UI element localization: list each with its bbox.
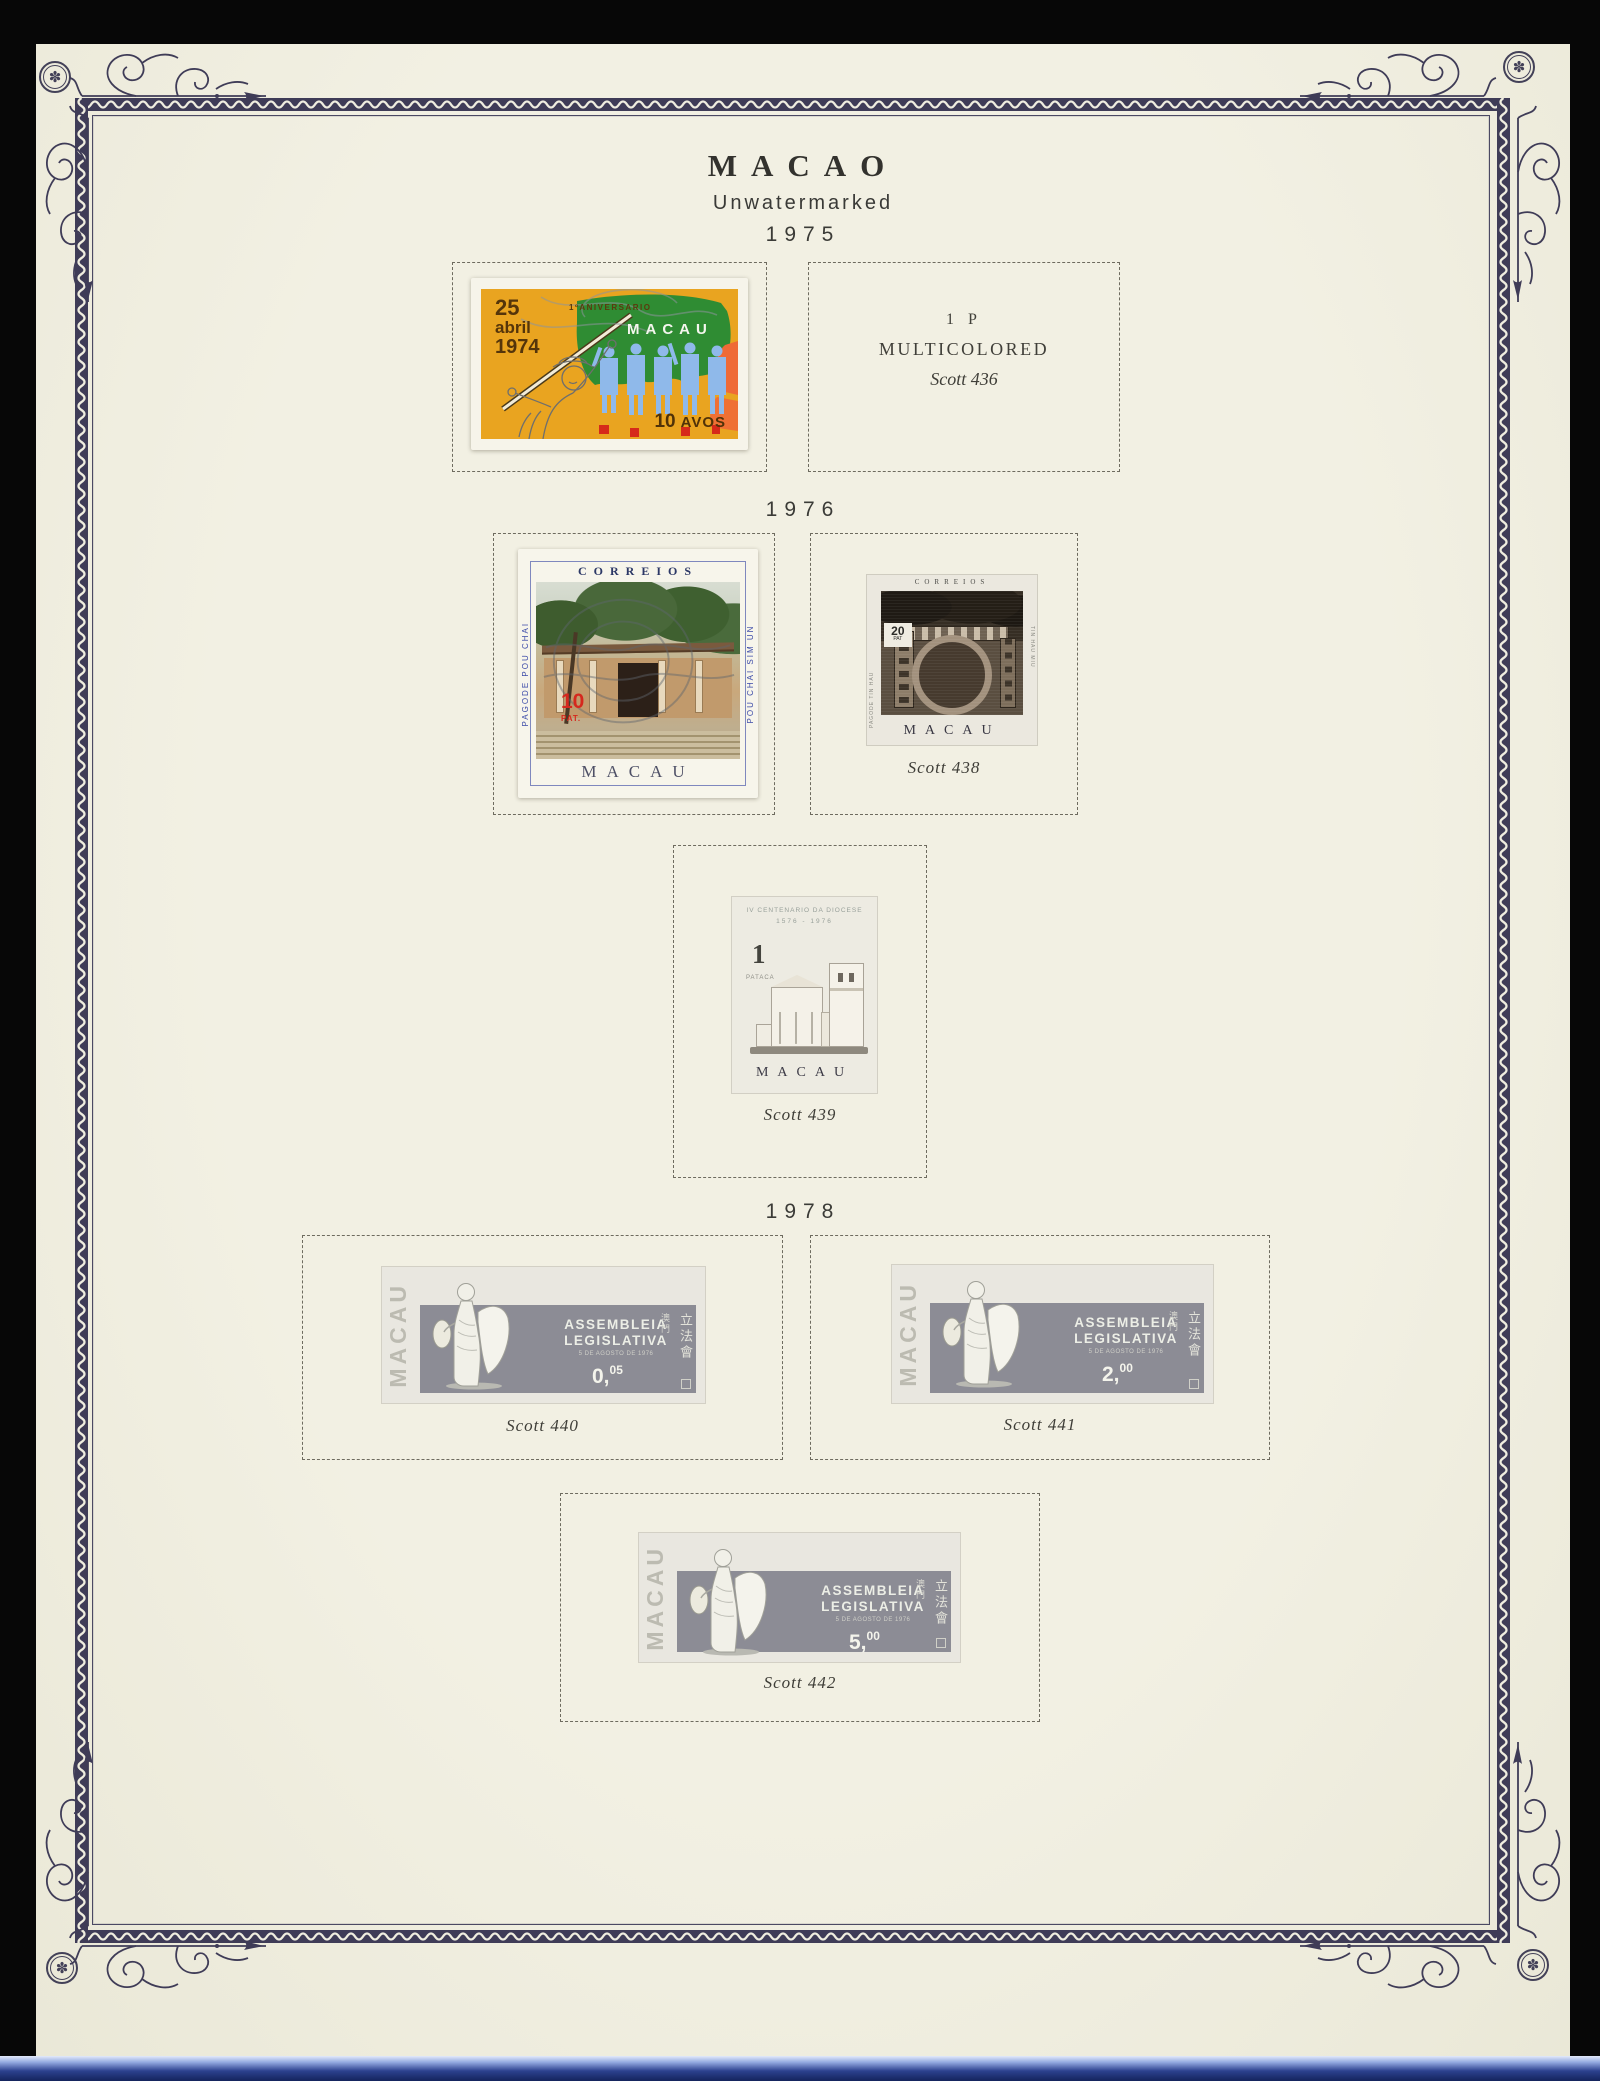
corner-flourish-ornament: [1290, 1940, 1500, 1996]
stamp-denomination: 10AVOS: [654, 411, 726, 433]
stamp-slot-scott-435: 25 abril 1974 1ºANIVERSARIO MACAU 10AVOS: [452, 262, 767, 472]
halftone-texture: [881, 591, 1023, 715]
catalog-caption: Scott 441: [811, 1415, 1269, 1435]
stamp-chinese-inscription: 澳門 立法會: [914, 1579, 950, 1646]
album-binding-edge: [0, 2056, 1600, 2081]
stamp-value-decimals: 05: [610, 1363, 623, 1377]
stamp-slot-scott-442: MACAU ASSEMBLEIA LEGISLATIVA 5 DE AGOSTO…: [560, 1493, 1040, 1722]
stamp-left-inscription: PAGODE TIN HAU: [869, 626, 875, 728]
stamp-value-chip: 20 PAT: [884, 623, 912, 647]
stamp-country-name-vertical: MACAU: [382, 1267, 414, 1403]
slot-color-label: MULTICOLORED: [809, 339, 1119, 360]
tower-cornice: [830, 988, 863, 991]
stamp-country-name: MACAU: [385, 1282, 412, 1388]
slot-denomination-label: 1 P: [809, 311, 1119, 329]
stamp-value: 0,: [592, 1365, 610, 1388]
stamp-title-line1: ASSEMBLEIA: [821, 1583, 925, 1598]
stamp-correios-header: CORREIOS: [531, 564, 745, 579]
stamp-title-line2: LEGISLATIVA: [1074, 1331, 1178, 1346]
stamp-chinese-inscription: 澳門 立法會: [1167, 1311, 1203, 1387]
rosette-flower-icon: ✽: [49, 70, 62, 85]
seated-justice-figure: [938, 1271, 1034, 1395]
chinese-macau: 澳門: [659, 1313, 672, 1335]
stamp-right-inscription: POU CHAI SIM UN: [746, 589, 755, 758]
rosette-flower-icon: ✽: [1513, 60, 1526, 75]
stamp-title-line2: LEGISLATIVA: [564, 1333, 668, 1348]
stamp-seal-icon: [681, 1379, 691, 1389]
church-tower: [829, 963, 864, 1047]
chinese-macau: 澳門: [1167, 1311, 1180, 1333]
stamp-country-name: MACAU: [627, 321, 713, 338]
gate-photo: 20 PAT: [881, 591, 1023, 715]
corner-flourish-ornament: [1512, 102, 1568, 312]
catalog-caption: Scott 438: [811, 758, 1077, 778]
stamp-value: 10: [654, 411, 675, 432]
stamp-pou-chai-artwork: CORREIOS: [530, 561, 746, 786]
postmark-overlay: [536, 582, 740, 759]
stamp-anniversary-text: 1ºANIVERSARIO: [569, 303, 651, 312]
catalog-caption: Scott 442: [561, 1673, 1039, 1693]
church-illustration: [756, 959, 864, 1047]
stamp-value-decimals: 00: [867, 1629, 880, 1643]
stamp-slot-scott-439: IV CENTENARIO DA DIOCESE 1576 - 1976 1 P…: [673, 845, 927, 1178]
seated-justice-figure: [685, 1539, 781, 1663]
stamp-top-inscription: IV CENTENARIO DA DIOCESE: [732, 907, 877, 914]
stamp-slot-scott-436: 1 P MULTICOLORED Scott 436: [808, 262, 1120, 472]
stamp-denomination: 5,00: [849, 1629, 880, 1655]
stamp-right-inscription: TIN HAU MIU: [1029, 626, 1035, 728]
stamp-title-line1: ASSEMBLEIA: [564, 1317, 668, 1332]
corner-flourish-ornament: [1512, 1732, 1568, 1942]
church-ground-shadow: [750, 1047, 868, 1054]
rosette-medallion-icon: ✽: [1517, 1949, 1549, 1981]
page-title: MACAO: [36, 148, 1570, 184]
corner-flourish-ornament: [66, 1940, 276, 1996]
stamp-value-decimals: 00: [1120, 1361, 1133, 1375]
stamp-slot-scott-438: CORREIOS 20 PAT PAGODE TIN HAU TIN HAU M…: [810, 533, 1078, 815]
stamp-date-month: abril: [495, 319, 540, 336]
stamp-correios-header: CORREIOS: [867, 578, 1037, 586]
album-page: ✽ ✽ ✽ ✽ MACAO Unwatermarked 1975 1976 19…: [36, 44, 1570, 2058]
stamp-left-inscription: PAGODE POU CHAI: [521, 589, 530, 758]
stamp-pou-chai-pagoda: CORREIOS: [518, 549, 758, 798]
corner-flourish-ornament: [66, 46, 276, 102]
corner-flourish-ornament: [38, 1732, 94, 1942]
tower-window: [849, 973, 854, 982]
slot-catalog-number: Scott 436: [809, 369, 1119, 390]
watermark-subtitle: Unwatermarked: [36, 192, 1570, 215]
stamp-value: 5,: [849, 1631, 867, 1654]
stamp-seal-icon: [936, 1638, 946, 1648]
stamp-value-unit: AVOS: [681, 414, 726, 431]
church-annex: [756, 1024, 772, 1047]
stamp-value-unit: PAT.: [561, 714, 581, 723]
stamp-value: 2,: [1102, 1363, 1120, 1386]
stamp-date-year: 1974: [495, 337, 540, 357]
tower-window: [838, 973, 843, 982]
chinese-legislative-assembly: 立法會: [676, 1313, 695, 1361]
stamp-slot-scott-437: CORREIOS: [493, 533, 775, 815]
stamp-denomination: 0,05: [592, 1363, 623, 1389]
stamp-assembleia-200: MACAU ASSEMBLEIA LEGISLATIVA 5 DE AGOSTO…: [891, 1264, 1214, 1404]
stamp-slot-scott-441: MACAU ASSEMBLEIA LEGISLATIVA 5 DE AGOSTO…: [810, 1235, 1270, 1460]
stamp-date-text: 25 abril 1974: [495, 297, 540, 357]
seated-justice-figure: [428, 1273, 524, 1397]
stamp-25-abril-1974: 25 abril 1974 1ºANIVERSARIO MACAU 10AVOS: [471, 278, 748, 450]
stamp-country-name: MACAU: [732, 1065, 877, 1081]
stamp-title-line1: ASSEMBLEIA: [1074, 1315, 1178, 1330]
stamp-country-name: MACAU: [867, 723, 1037, 739]
year-heading-1975: 1975: [36, 223, 1570, 247]
stamp-denomination: 2,00: [1102, 1361, 1133, 1387]
stamp-slot-scott-440: MACAU ASSEMBLEIA LEGISLATIVA 5 DE AGOSTO…: [302, 1235, 783, 1460]
stamp-diocese-church: IV CENTENARIO DA DIOCESE 1576 - 1976 1 P…: [731, 896, 878, 1094]
church-facade: [771, 987, 823, 1047]
stamp-years-inscription: 1576 - 1976: [732, 918, 877, 925]
church-pediment: [771, 975, 823, 987]
chinese-legislative-assembly: 立法會: [1184, 1311, 1203, 1359]
stamp-country-name-vertical: MACAU: [892, 1265, 924, 1403]
pagoda-photo: [536, 582, 740, 759]
chinese-macau: 澳門: [914, 1579, 927, 1601]
stamp-country-name-vertical: MACAU: [639, 1533, 671, 1662]
stamp-value: 10: [561, 690, 584, 714]
stamp-seal-icon: [1189, 1379, 1199, 1389]
border-wave-left: [75, 98, 88, 1943]
stamp-country-name: MACAU: [642, 1545, 669, 1651]
stamp-title-line2: LEGISLATIVA: [821, 1599, 925, 1614]
stamp-tin-hau-gate: CORREIOS 20 PAT PAGODE TIN HAU TIN HAU M…: [866, 574, 1038, 746]
border-wave-right: [1497, 98, 1510, 1943]
rosette-medallion-icon: ✽: [1503, 51, 1535, 83]
catalog-caption: Scott 439: [674, 1105, 926, 1125]
stamp-value-unit: PAT: [884, 637, 912, 642]
stamp-25-abril-artwork: 25 abril 1974 1ºANIVERSARIO MACAU 10AVOS: [481, 289, 738, 439]
stamp-chinese-inscription: 澳門 立法會: [659, 1313, 695, 1387]
stamp-country-name: MACAU: [531, 762, 745, 782]
chinese-legislative-assembly: 立法會: [931, 1579, 950, 1627]
stamp-assembleia-005: MACAU ASSEMBLEIA LEGISLATIVA 5 DE AGOSTO…: [381, 1266, 706, 1404]
stamp-country-name: MACAU: [895, 1281, 922, 1387]
stamp-date-day: 25: [495, 297, 540, 319]
stamp-assembleia-500: MACAU ASSEMBLEIA LEGISLATIVA 5 DE AGOSTO…: [638, 1532, 961, 1663]
corner-flourish-ornament: [38, 102, 94, 312]
year-heading-1976: 1976: [36, 498, 1570, 522]
corner-flourish-ornament: [1290, 46, 1500, 102]
year-heading-1978: 1978: [36, 1200, 1570, 1224]
catalog-caption: Scott 440: [303, 1416, 782, 1436]
rosette-flower-icon: ✽: [1527, 1958, 1540, 1973]
